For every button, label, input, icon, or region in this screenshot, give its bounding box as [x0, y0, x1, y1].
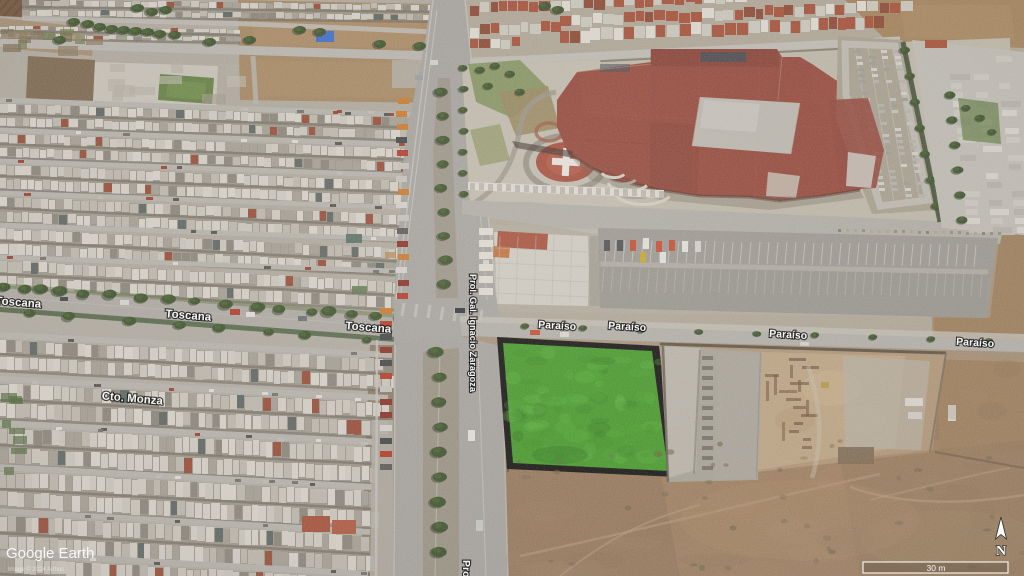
- svg-text:Paraíso: Paraíso: [769, 328, 808, 342]
- svg-text:Prol. Gal. Ignacio Zaragoza: Prol. Gal. Ignacio Zaragoza: [468, 274, 478, 393]
- svg-text:Paraíso: Paraíso: [538, 319, 577, 333]
- svg-text:Paraíso: Paraíso: [608, 320, 647, 334]
- svg-text:30 m: 30 m: [927, 563, 946, 573]
- svg-text:Image © 2024 Airbus: Image © 2024 Airbus: [8, 566, 64, 573]
- svg-text:Google Earth: Google Earth: [6, 545, 94, 562]
- svg-text:Prol. Gra: Prol. Gra: [460, 560, 472, 576]
- svg-text:Paraíso: Paraíso: [956, 336, 995, 350]
- svg-text:N: N: [996, 544, 1006, 559]
